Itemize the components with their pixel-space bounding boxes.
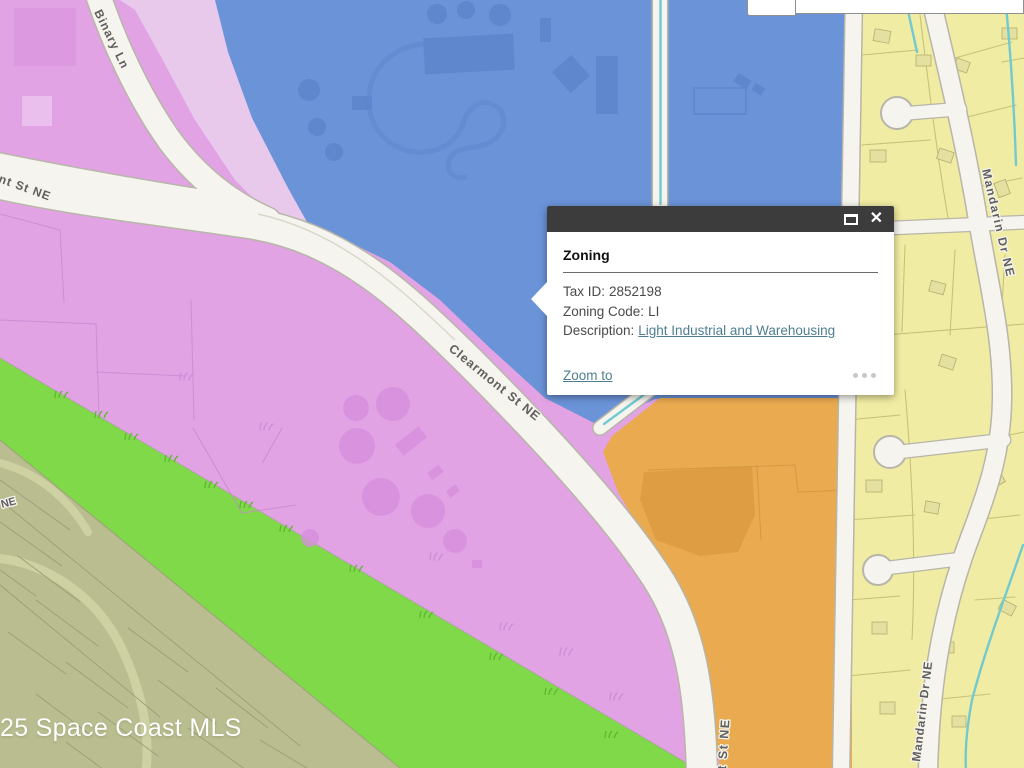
tax-id-label: Tax ID: bbox=[563, 284, 605, 299]
close-icon[interactable]: ✕ bbox=[870, 211, 883, 227]
popup-title: Zoning bbox=[563, 247, 878, 263]
popup-tail bbox=[531, 282, 547, 316]
zoning-code-value: LI bbox=[648, 304, 659, 319]
tax-id-value: 2852198 bbox=[609, 284, 662, 299]
popup-field-zoning-code: Zoning Code:LI bbox=[563, 302, 878, 322]
top-toolbar-fragment[interactable] bbox=[747, 0, 1024, 16]
zoning-popup: ✕ Zoning Tax ID:2852198 Zoning Code:LI D… bbox=[547, 206, 894, 395]
popup-divider bbox=[563, 272, 878, 273]
zoning-code-label: Zoning Code: bbox=[563, 304, 644, 319]
popup-body: Zoning Tax ID:2852198 Zoning Code:LI Des… bbox=[547, 232, 894, 395]
popup-header: ✕ bbox=[547, 206, 894, 232]
zoom-to-link[interactable]: Zoom to bbox=[563, 368, 613, 383]
more-options-button[interactable] bbox=[853, 373, 878, 378]
popup-field-description: Description:Light Industrial and Warehou… bbox=[563, 321, 878, 341]
toolbar-button-fragment[interactable] bbox=[747, 0, 796, 16]
toolbar-bar-fragment[interactable] bbox=[796, 0, 1024, 14]
maximize-icon[interactable] bbox=[844, 214, 858, 225]
watermark: 25 Space Coast MLS bbox=[0, 714, 242, 743]
popup-field-tax-id: Tax ID:2852198 bbox=[563, 282, 878, 302]
description-link[interactable]: Light Industrial and Warehousing bbox=[638, 323, 835, 338]
description-label: Description: bbox=[563, 323, 634, 338]
popup-footer: Zoom to bbox=[563, 368, 878, 383]
